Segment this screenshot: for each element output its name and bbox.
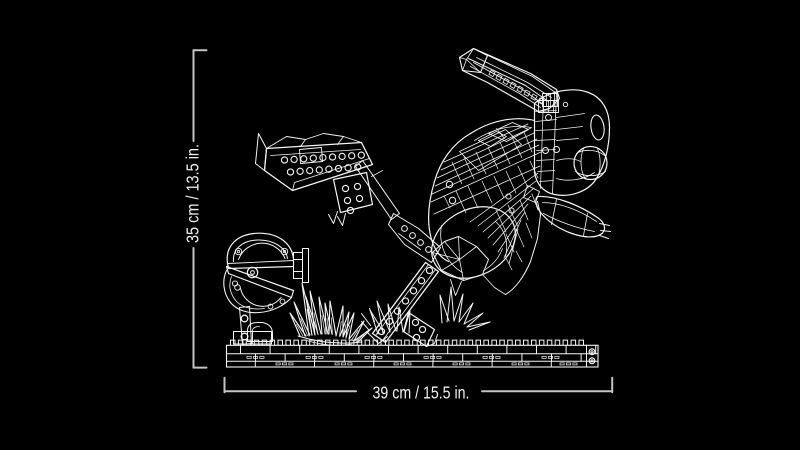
- svg-text:35 cm / 13.5 in.: 35 cm / 13.5 in.: [183, 144, 203, 243]
- svg-text:39 cm / 15.5 in.: 39 cm / 15.5 in.: [373, 383, 470, 403]
